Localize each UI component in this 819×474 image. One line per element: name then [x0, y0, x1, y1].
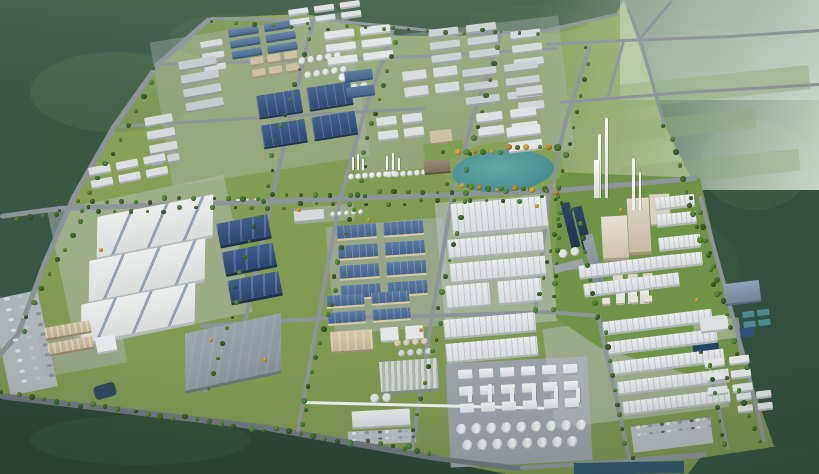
layer-overlay: [0, 0, 819, 474]
industrial-park-aerial-render: Aerial rendering of an industrial park: [0, 0, 819, 474]
overlay-rect-1: [0, 0, 819, 474]
